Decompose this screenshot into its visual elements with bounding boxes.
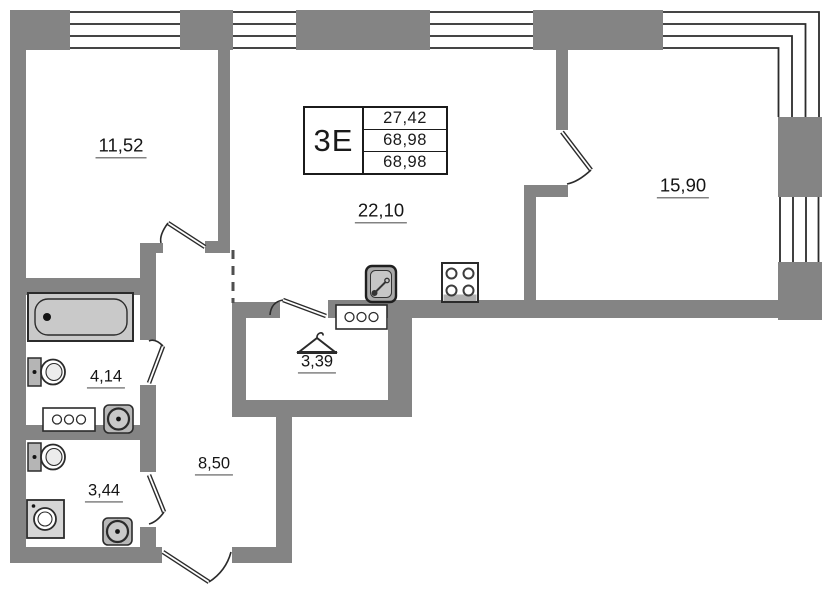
wall-segment — [328, 300, 822, 318]
unit-stat-total-area: 68,98 — [364, 130, 446, 152]
unit-stat-living-area: 27,42 — [364, 108, 446, 130]
wall-segment — [556, 50, 568, 130]
window-icon — [780, 197, 819, 262]
wall-segment — [232, 302, 246, 400]
wall-segment — [524, 185, 568, 197]
wall-segment — [388, 302, 412, 417]
room-area-label-hallway: 8,50 — [195, 454, 233, 475]
unit-stats: 27,42 68,98 68,98 — [364, 108, 446, 173]
room-area-label-bedroom-1: 11,52 — [96, 135, 147, 158]
bathtub-icon — [28, 293, 133, 341]
wall-segment — [296, 10, 430, 50]
floor-plan: 11,52 22,10 15,90 4,14 3,39 8,50 3,44 3Е… — [0, 0, 831, 600]
window-icon — [233, 12, 296, 48]
wall-segment — [140, 527, 156, 548]
unit-type-label: 3Е — [305, 108, 364, 173]
wall-segment — [218, 50, 230, 243]
stove-icon — [442, 263, 478, 302]
wall-segment — [10, 278, 156, 295]
wall-segment — [140, 243, 163, 253]
entrance-door — [163, 552, 231, 582]
wall-segment — [10, 425, 156, 440]
room-area-label-living-room: 22,10 — [355, 200, 407, 223]
wall-segment — [778, 262, 822, 320]
wall-segment — [180, 10, 233, 50]
clothes-hanger-icon — [297, 333, 337, 353]
interior-door-bathroom — [149, 340, 163, 383]
window-icon — [430, 12, 533, 48]
interior-door-wc — [149, 475, 164, 524]
room-area-label-bedroom-2: 15,90 — [657, 175, 709, 198]
unit-stat-reduced-area: 68,98 — [364, 152, 446, 173]
wall-segment — [524, 197, 536, 300]
kitchen-sink-icon — [366, 266, 396, 302]
wall-segment — [533, 10, 663, 50]
washing-machine-icon — [27, 500, 64, 538]
corner-window-icon — [663, 12, 819, 117]
interior-door-bedroom-2 — [562, 132, 591, 184]
toilet-icon — [28, 358, 65, 386]
wall-segment — [276, 417, 292, 563]
room-area-label-wc: 3,44 — [85, 481, 123, 502]
room-area-label-dressing-room: 3,39 — [298, 352, 336, 373]
toilet-icon — [28, 443, 65, 471]
room-area-label-bathroom: 4,14 — [87, 367, 125, 388]
window-icon — [70, 12, 180, 48]
wall-segment — [232, 400, 412, 417]
interior-door-bedroom-1 — [161, 223, 205, 247]
washbasin-icon — [103, 518, 132, 545]
wall-segment — [205, 241, 230, 253]
unit-info-box: 3Е 27,42 68,98 68,98 — [303, 106, 448, 175]
wall-segment — [10, 547, 162, 563]
wall-segment — [778, 117, 822, 197]
